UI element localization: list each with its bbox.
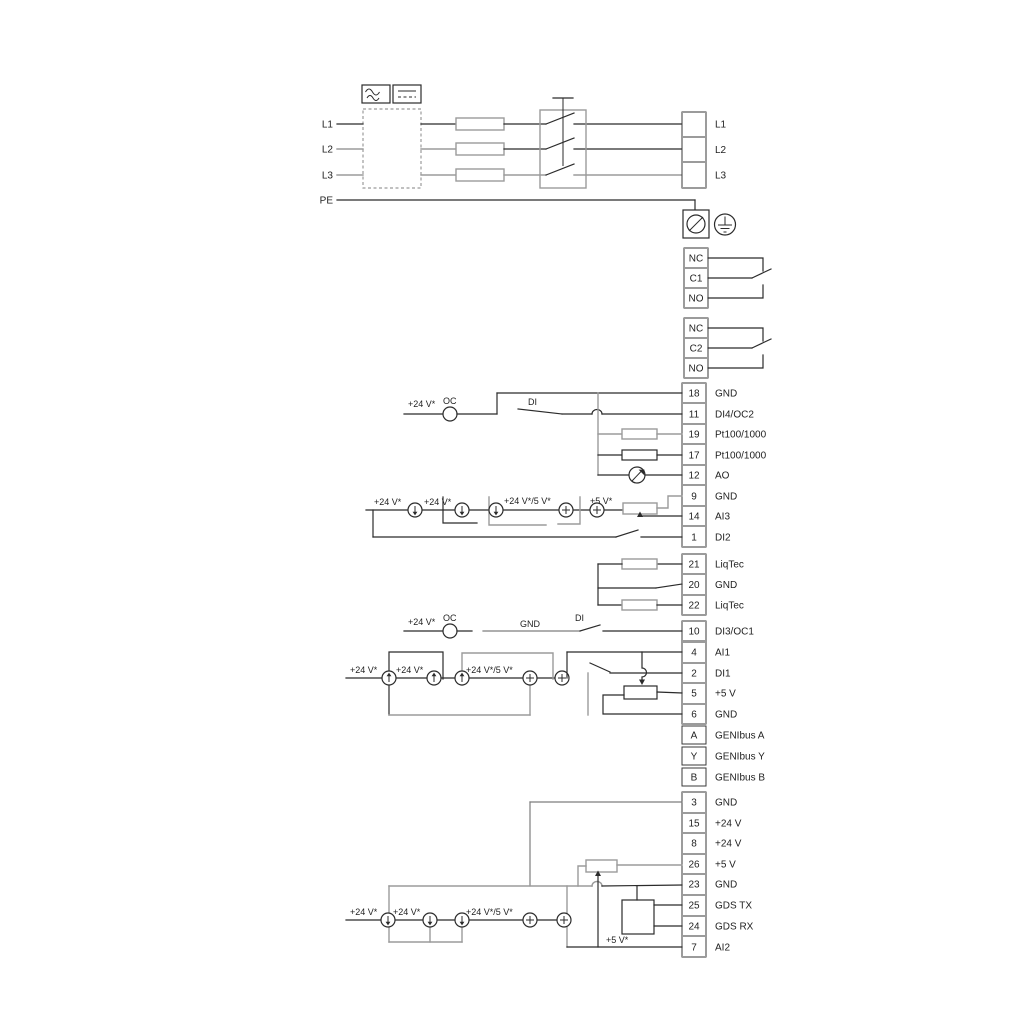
current-source-icon xyxy=(382,671,396,685)
resistor-icon xyxy=(622,450,657,460)
background xyxy=(0,0,1024,1024)
current-source-icon xyxy=(489,503,503,517)
svg-text:GND: GND xyxy=(715,580,737,591)
current-source-icon xyxy=(381,913,395,927)
v24-5v-label: +24 V*/5 V* xyxy=(466,907,513,917)
svg-text:GENIbus A: GENIbus A xyxy=(715,731,765,742)
svg-text:DI1: DI1 xyxy=(715,669,731,680)
relay1-c1-label: C1 xyxy=(690,274,703,285)
relay2-no-label: NO xyxy=(689,364,704,375)
svg-text:20: 20 xyxy=(688,580,700,591)
terminal-row-10: 10DI3/OC1 xyxy=(688,627,754,638)
resistor-icon xyxy=(622,559,657,569)
power-output-label-l3: L3 xyxy=(715,171,727,182)
voltage-source-icon xyxy=(523,913,537,927)
ac-wave-symbol-icon xyxy=(362,85,390,103)
svg-text:+24 V: +24 V xyxy=(715,819,742,830)
svg-text:24: 24 xyxy=(688,922,700,933)
v24-5v-label: +24 V*/5 V* xyxy=(466,665,513,675)
terminal-row-21: 21LiqTec xyxy=(688,560,743,571)
screw-terminal-icon xyxy=(683,210,709,238)
svg-text:AI3: AI3 xyxy=(715,512,730,523)
v24-label: +24 V* xyxy=(408,617,436,627)
v24-5v-label: +24 V*/5 V* xyxy=(504,496,551,506)
current-source-icon xyxy=(408,503,422,517)
svg-text:14: 14 xyxy=(688,512,700,523)
voltage-source-icon xyxy=(590,503,604,517)
svg-text:AI2: AI2 xyxy=(715,943,730,954)
svg-text:GND: GND xyxy=(715,492,737,503)
svg-text:GND: GND xyxy=(715,880,737,891)
svg-text:5: 5 xyxy=(691,689,697,700)
svg-text:GDS TX: GDS TX xyxy=(715,901,752,912)
svg-text:GND: GND xyxy=(715,710,737,721)
current-source-icon xyxy=(423,913,437,927)
svg-text:6: 6 xyxy=(691,710,697,721)
v24-label: +24 V* xyxy=(374,497,402,507)
power-input-label-pe: PE xyxy=(320,196,334,207)
voltage-source-icon xyxy=(557,913,571,927)
oc-label: OC xyxy=(443,396,457,406)
v24-label: +24 V* xyxy=(396,665,424,675)
svg-text:15: 15 xyxy=(688,819,700,830)
terminal-row-11: 11DI4/OC2 xyxy=(689,410,755,421)
svg-text:LiqTec: LiqTec xyxy=(715,601,744,612)
svg-text:8: 8 xyxy=(691,839,697,850)
svg-text:Pt100/1000: Pt100/1000 xyxy=(715,430,767,441)
earth-ground-icon xyxy=(715,214,736,235)
v24-label: +24 V* xyxy=(350,665,378,675)
svg-text:Y: Y xyxy=(691,752,698,763)
power-input-label-l3: L3 xyxy=(322,171,334,182)
svg-text:7: 7 xyxy=(691,943,697,954)
svg-text:3: 3 xyxy=(691,798,697,809)
svg-text:+5 V: +5 V xyxy=(715,860,736,871)
open-collector-icon xyxy=(443,407,457,421)
power-output-label-l2: L2 xyxy=(715,145,727,156)
terminal-row-22: 22LiqTec xyxy=(688,601,743,612)
power-input-label-l2: L2 xyxy=(322,145,334,156)
resistor-icon xyxy=(622,600,657,610)
svg-text:+5 V: +5 V xyxy=(715,689,736,700)
svg-text:AO: AO xyxy=(715,471,730,482)
relay2-nc-label: NC xyxy=(689,324,703,335)
v24-label: +24 V* xyxy=(424,497,452,507)
svg-text:26: 26 xyxy=(688,860,700,871)
current-source-icon xyxy=(455,503,469,517)
terminal-row-25: 25GDS TX xyxy=(688,901,752,912)
relay2-c2-label: C2 xyxy=(690,344,703,355)
voltage-source-icon xyxy=(559,503,573,517)
v5-label: +5 V* xyxy=(606,935,629,945)
svg-text:DI4/OC2: DI4/OC2 xyxy=(715,410,754,421)
svg-text:A: A xyxy=(691,731,698,742)
svg-text:1: 1 xyxy=(691,533,697,544)
fuse-icon xyxy=(456,169,504,181)
voltage-source-icon xyxy=(523,671,537,685)
current-source-icon xyxy=(455,671,469,685)
svg-text:18: 18 xyxy=(688,389,700,400)
svg-text:LiqTec: LiqTec xyxy=(715,560,744,571)
gnd-label: GND xyxy=(520,619,541,629)
svg-text:22: 22 xyxy=(688,601,700,612)
svg-text:DI3/OC1: DI3/OC1 xyxy=(715,627,754,638)
svg-text:AI1: AI1 xyxy=(715,648,730,659)
mains-terminal-block: L1 L2 L3 xyxy=(682,112,727,188)
svg-text:21: 21 xyxy=(688,560,700,571)
svg-text:2: 2 xyxy=(691,669,697,680)
svg-text:GDS RX: GDS RX xyxy=(715,922,754,933)
fuse-icon xyxy=(456,143,504,155)
power-input-label-l1: L1 xyxy=(322,120,334,131)
terminal-row-15: 15+24 V xyxy=(688,819,741,830)
svg-text:GND: GND xyxy=(715,798,737,809)
v24-label: +24 V* xyxy=(393,907,421,917)
v24-label: +24 V* xyxy=(408,399,436,409)
svg-text:GENIbus B: GENIbus B xyxy=(715,773,765,784)
svg-text:DI2: DI2 xyxy=(715,533,731,544)
open-collector-icon xyxy=(443,624,457,638)
svg-text:17: 17 xyxy=(688,451,700,462)
di-label: DI xyxy=(528,397,537,407)
svg-text:12: 12 xyxy=(688,471,700,482)
relay1-no-label: NO xyxy=(689,294,704,305)
svg-text:Pt100/1000: Pt100/1000 xyxy=(715,451,767,462)
analog-output-meter-icon xyxy=(629,467,645,483)
wiring-diagram-page: L1 L2 L3 PE xyxy=(0,0,1024,1024)
relay1-nc-label: NC xyxy=(689,254,703,265)
wiring-diagram: L1 L2 L3 PE xyxy=(0,0,1024,1024)
svg-text:9: 9 xyxy=(691,492,697,503)
power-output-label-l1: L1 xyxy=(715,120,727,131)
svg-text:25: 25 xyxy=(688,901,700,912)
svg-text:GND: GND xyxy=(715,389,737,400)
di-label: DI xyxy=(575,613,584,623)
svg-text:23: 23 xyxy=(688,880,700,891)
svg-text:10: 10 xyxy=(688,627,700,638)
svg-text:+24 V: +24 V xyxy=(715,839,742,850)
v24-label: +24 V* xyxy=(350,907,378,917)
resistor-icon xyxy=(622,429,657,439)
current-source-icon xyxy=(455,913,469,927)
oc-label: OC xyxy=(443,613,457,623)
svg-text:GENIbus Y: GENIbus Y xyxy=(715,752,765,763)
terminal-row-24: 24GDS RX xyxy=(688,922,753,933)
svg-text:11: 11 xyxy=(689,410,700,421)
fuse-icon xyxy=(456,118,504,130)
svg-text:B: B xyxy=(691,773,698,784)
current-source-icon xyxy=(427,671,441,685)
svg-text:19: 19 xyxy=(688,430,700,441)
dc-line-symbol-icon xyxy=(393,85,421,103)
svg-text:4: 4 xyxy=(691,648,697,659)
